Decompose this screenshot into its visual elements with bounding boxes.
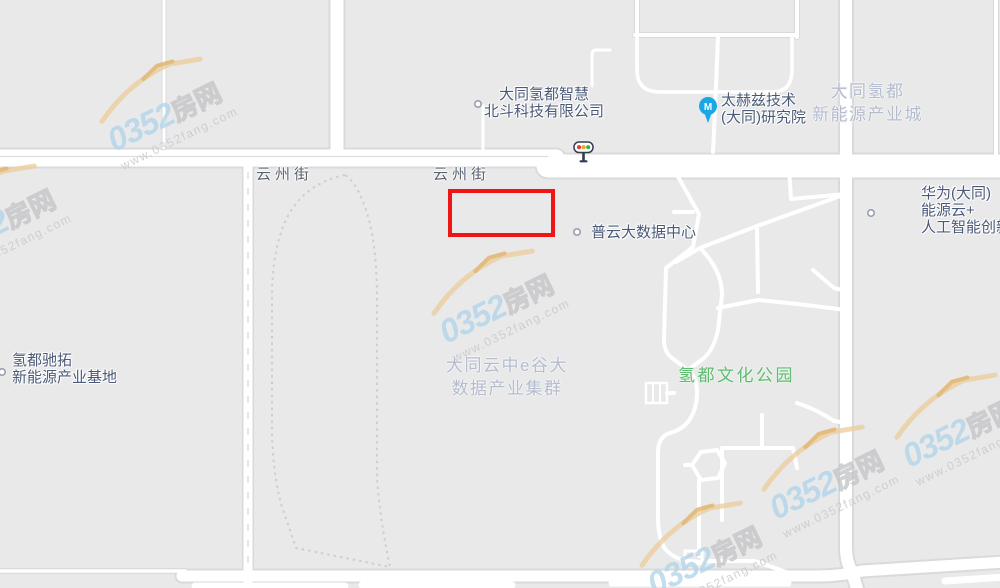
map-label-huawei-energy-cloud[interactable]: 华为(大同)能源云+人工智能创新 (921, 185, 1000, 236)
parcel-dotted-boundary (272, 175, 390, 567)
map-label-qingdu-industry-city: 大同氢都新能源产业城 (812, 80, 923, 126)
map-viewport[interactable]: M 大同氢都智慧北斗科技有限公司太赫兹技术(大同)研究院大同氢都新能源产业城华为… (0, 0, 1000, 588)
poi-dot-marker[interactable] (574, 229, 580, 235)
poi-dot-markers (0, 101, 874, 375)
poi-dot-marker[interactable] (475, 101, 481, 107)
road-label-1: 云州街 (256, 163, 313, 184)
poi-dot-marker[interactable] (868, 210, 874, 216)
map-label-qingdu-culture-park: 氢都文化公园 (678, 366, 795, 386)
map-label-egu-data-cluster: 大同云中e谷大数据产业集群 (446, 354, 568, 400)
svg-text:M: M (704, 102, 712, 113)
road-label-2: 云州街 (433, 163, 490, 184)
highlight-rectangle (448, 189, 555, 237)
poi-dot-marker[interactable] (0, 369, 5, 375)
map-label-beidou-tech[interactable]: 大同氢都智慧北斗科技有限公司 (484, 86, 604, 120)
map-label-puyun-data-center[interactable]: 普云大数据中心 (591, 224, 696, 241)
map-label-terahertz-institute[interactable]: 太赫兹技术(大同)研究院 (721, 92, 806, 126)
map-label-chituo-base[interactable]: 氢都驰拓新能源产业基地 (12, 352, 117, 386)
